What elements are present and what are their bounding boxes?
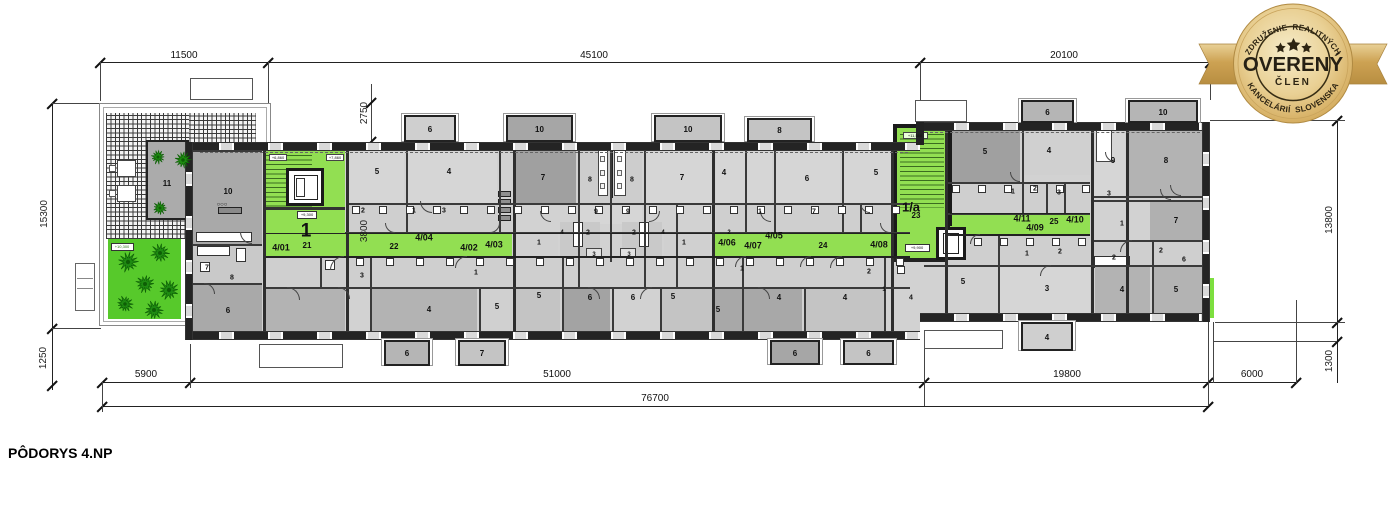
svg-text:OVERENÝ: OVERENÝ	[1243, 52, 1344, 76]
svg-text:ČLEN: ČLEN	[1275, 75, 1311, 88]
